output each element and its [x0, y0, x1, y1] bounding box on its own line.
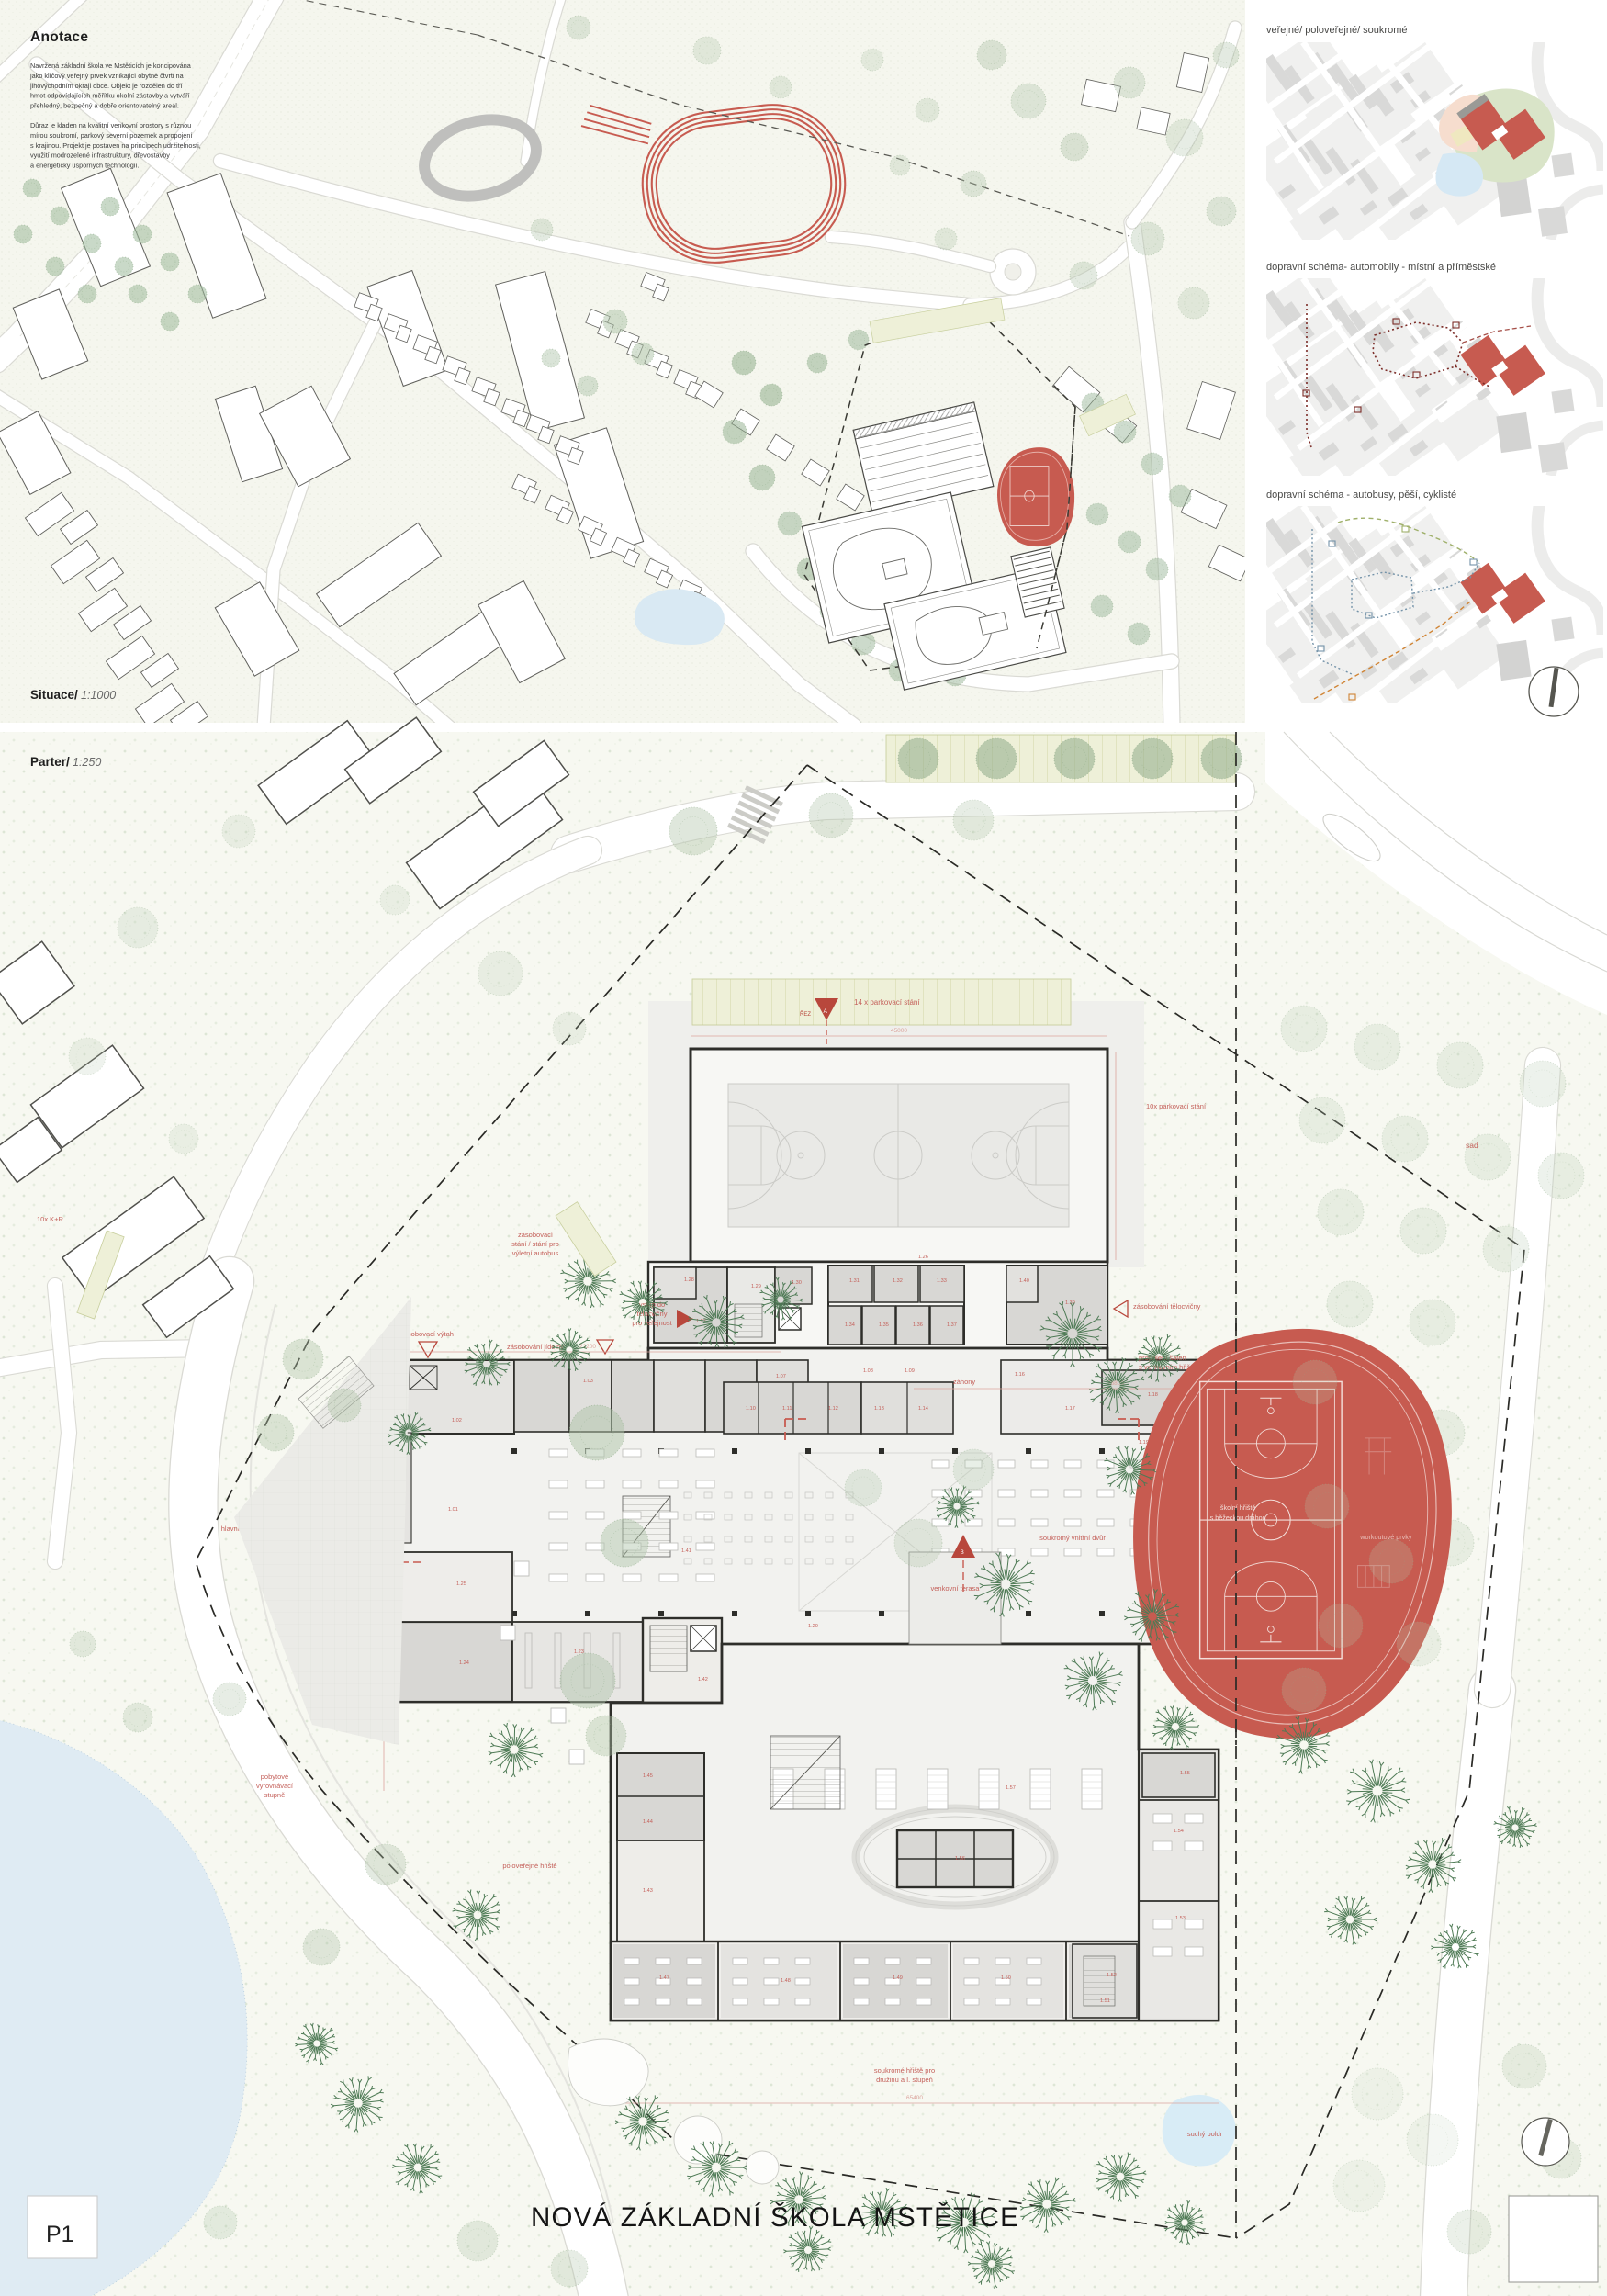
- svg-text:1.43: 1.43: [643, 1888, 653, 1894]
- svg-text:1.20: 1.20: [808, 1624, 818, 1629]
- svg-text:mírou soukromí, parkový severn: mírou soukromí, parkový severní pozemek …: [30, 131, 192, 140]
- svg-text:1.16: 1.16: [1015, 1372, 1025, 1378]
- svg-text:1.17: 1.17: [1065, 1406, 1075, 1412]
- svg-text:Důraz je kladen na kvalitní ve: Důraz je kladen na kvalitní venkovní pro…: [30, 121, 191, 129]
- svg-text:1.33: 1.33: [937, 1278, 947, 1284]
- svg-text:B: B: [961, 1549, 964, 1556]
- svg-text:P1: P1: [46, 2222, 74, 2247]
- svg-text:NOVÁ ZÁKLADNÍ ŠKOLA MSTĚTICE: NOVÁ ZÁKLADNÍ ŠKOLA MSTĚTICE: [531, 2201, 1019, 2233]
- svg-text:10x parkovací stání: 10x parkovací stání: [1146, 1102, 1207, 1110]
- svg-text:1.32: 1.32: [893, 1278, 903, 1284]
- svg-text:Navržená základní škola ve Mst: Navržená základní škola ve Mstěticích je…: [30, 62, 192, 70]
- svg-text:využití modrozelené infrastruk: využití modrozelené infrastruktury, dřev…: [30, 152, 170, 160]
- svg-text:ŘEZ: ŘEZ: [800, 1010, 811, 1018]
- svg-text:1.53: 1.53: [1175, 1916, 1186, 1921]
- svg-text:1.08: 1.08: [863, 1368, 873, 1374]
- svg-text:1.48: 1.48: [781, 1978, 791, 1984]
- svg-text:1.09: 1.09: [905, 1368, 915, 1374]
- svg-text:1.31: 1.31: [849, 1278, 860, 1284]
- svg-text:zásobovací: zásobovací: [518, 1231, 554, 1239]
- svg-text:1.02: 1.02: [452, 1418, 462, 1424]
- svg-text:1.03: 1.03: [583, 1379, 593, 1384]
- svg-text:sad: sad: [1466, 1141, 1478, 1150]
- svg-text:suchý poldr: suchý poldr: [1187, 2130, 1223, 2138]
- svg-text:Parter/: Parter/: [30, 755, 70, 769]
- svg-text:1.01: 1.01: [448, 1507, 458, 1513]
- svg-text:stání / stání pro: stání / stání pro: [511, 1240, 559, 1248]
- svg-text:1.07: 1.07: [776, 1374, 786, 1379]
- svg-text:1.56: 1.56: [955, 1856, 965, 1862]
- svg-text:A: A: [824, 1008, 828, 1015]
- svg-text:1:1000: 1:1000: [81, 689, 116, 702]
- svg-text:1.29: 1.29: [751, 1284, 761, 1289]
- svg-text:10x K+R: 10x K+R: [37, 1215, 64, 1223]
- svg-text:1.51: 1.51: [1100, 1998, 1110, 2004]
- svg-text:1.52: 1.52: [1107, 1973, 1117, 1978]
- svg-text:1.57: 1.57: [1006, 1785, 1016, 1791]
- svg-text:výletní autobus: výletní autobus: [512, 1249, 559, 1257]
- svg-text:školní hřiště: školní hřiště: [1220, 1503, 1256, 1512]
- svg-text:1.49: 1.49: [893, 1975, 903, 1981]
- svg-text:poloveřejné hřiště: poloveřejné hřiště: [502, 1862, 556, 1870]
- svg-text:1.25: 1.25: [456, 1581, 466, 1587]
- svg-text:1.30: 1.30: [792, 1280, 802, 1286]
- svg-text:1.11: 1.11: [782, 1406, 792, 1412]
- svg-text:1.12: 1.12: [828, 1406, 838, 1412]
- svg-text:přehledný, bezpečný a dobře or: přehledný, bezpečný a dobře orientovatel…: [30, 102, 179, 110]
- svg-text:s krajinou. Projekt je postave: s krajinou. Projekt je postaven na princ…: [30, 141, 201, 150]
- svg-text:1.10: 1.10: [746, 1406, 756, 1412]
- svg-text:1:250: 1:250: [73, 756, 101, 769]
- svg-text:1.37: 1.37: [947, 1322, 957, 1328]
- svg-text:soukromé hřiště pro: soukromé hřiště pro: [874, 2066, 935, 2075]
- svg-text:záhony: záhony: [953, 1378, 975, 1386]
- svg-text:14 x parkovací stání: 14 x parkovací stání: [854, 998, 920, 1007]
- svg-text:1.34: 1.34: [845, 1322, 855, 1328]
- svg-text:a energeticky úsporných techno: a energeticky úsporných technologií.: [30, 162, 139, 170]
- svg-text:hmot odpovídajících měřítku ok: hmot odpovídajících měřítku okolní zásta…: [30, 92, 190, 100]
- svg-text:dopravní schéma - autobusy, pě: dopravní schéma - autobusy, pěší, cyklis…: [1266, 490, 1456, 501]
- svg-text:stupně: stupně: [264, 1791, 286, 1799]
- svg-text:venkovní terasa: venkovní terasa: [931, 1584, 981, 1593]
- svg-text:Anotace: Anotace: [30, 29, 88, 45]
- svg-text:soukromý vnitřní dvůr: soukromý vnitřní dvůr: [1039, 1534, 1106, 1542]
- svg-text:jako klíčový veřejný prvek vzn: jako klíčový veřejný prvek vznikající ob…: [29, 72, 185, 80]
- svg-text:1.28: 1.28: [684, 1277, 694, 1283]
- svg-text:1.41: 1.41: [681, 1548, 691, 1554]
- svg-text:zásobování jídelny: zásobování jídelny: [507, 1343, 564, 1351]
- svg-text:1.13: 1.13: [874, 1406, 884, 1412]
- svg-text:22200: 22200: [579, 1344, 596, 1350]
- svg-text:vyrovnávací: vyrovnávací: [256, 1782, 294, 1790]
- svg-text:1.24: 1.24: [459, 1660, 469, 1666]
- svg-text:1.54: 1.54: [1174, 1829, 1184, 1834]
- svg-text:zásobování tělocvičny: zásobování tělocvičny: [1133, 1302, 1201, 1311]
- svg-text:1.42: 1.42: [698, 1677, 708, 1683]
- svg-text:dopravní schéma- automobily -: dopravní schéma- automobily - místní a p…: [1266, 262, 1496, 273]
- svg-text:1.35: 1.35: [879, 1322, 889, 1328]
- svg-text:družinu a I. stupeň: družinu a I. stupeň: [876, 2076, 933, 2084]
- svg-text:65400: 65400: [906, 2095, 923, 2101]
- svg-text:pro veřejnost: pro veřejnost: [632, 1319, 672, 1327]
- svg-text:1.26: 1.26: [918, 1255, 928, 1260]
- svg-text:45000: 45000: [891, 1028, 907, 1034]
- svg-text:1.18: 1.18: [1148, 1392, 1158, 1398]
- svg-text:1.45: 1.45: [643, 1773, 653, 1779]
- svg-text:1.14: 1.14: [918, 1406, 928, 1412]
- svg-text:1.55: 1.55: [1180, 1771, 1190, 1776]
- svg-text:Situace/: Situace/: [30, 688, 78, 702]
- svg-text:jihovýchodním okraji obce. Obj: jihovýchodním okraji obce. Objekt je roz…: [29, 82, 182, 90]
- svg-text:pobytové: pobytové: [261, 1773, 288, 1781]
- svg-text:veřejné/ poloveřejné/ soukromé: veřejné/ poloveřejné/ soukromé: [1266, 25, 1407, 36]
- svg-text:workoutové prvky: workoutové prvky: [1359, 1533, 1412, 1541]
- svg-text:1.44: 1.44: [643, 1819, 653, 1825]
- svg-text:1.40: 1.40: [1019, 1278, 1029, 1284]
- svg-text:1.50: 1.50: [1001, 1975, 1011, 1981]
- svg-text:1.36: 1.36: [913, 1322, 923, 1328]
- svg-text:1.47: 1.47: [659, 1975, 669, 1981]
- svg-text:s běžeckou dráhou: s běžeckou dráhou: [1210, 1514, 1266, 1522]
